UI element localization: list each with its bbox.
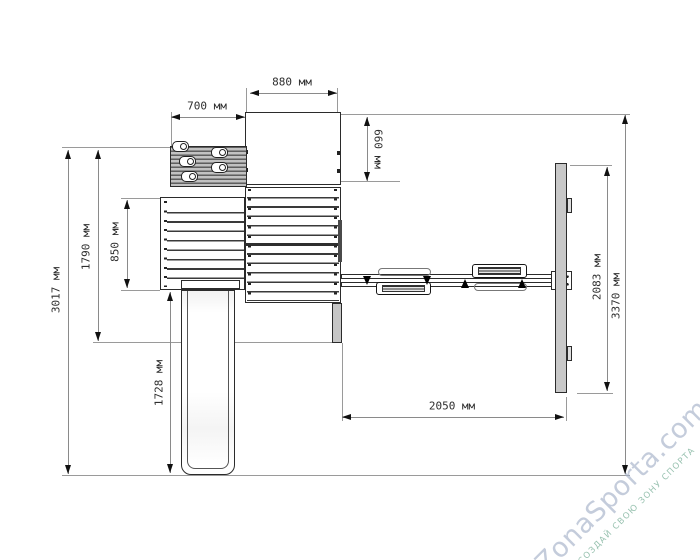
dim-label-aframe-base-length: 2083 мм	[591, 254, 604, 300]
swing-beam-rail	[341, 282, 565, 287]
dim-label-overall-depth: 3017 мм	[50, 267, 63, 313]
dim-label-tower-width: 880 мм	[272, 76, 312, 89]
slide-rails	[187, 291, 229, 469]
dimension-tower-depth	[367, 117, 368, 181]
extension-line	[342, 343, 343, 421]
deck-divider	[245, 243, 341, 246]
dimension-slide-length	[170, 292, 171, 473]
post-bracket	[567, 198, 572, 213]
deck-side-rail	[338, 220, 342, 262]
extension-line	[337, 88, 338, 112]
dimensional-drawing: 880 мм 700 мм 660 мм 3017 мм 1790 мм 850…	[0, 0, 700, 560]
dimension-overall-width	[625, 115, 626, 474]
climbing-hold	[181, 171, 198, 182]
climbing-hold	[179, 156, 196, 167]
post-bracket	[567, 346, 572, 361]
extension-line	[341, 181, 400, 182]
dimension-tower-width	[250, 93, 337, 94]
swing-seat-left-ghost	[378, 268, 431, 276]
dim-label-slide-length: 1728 мм	[153, 360, 166, 406]
dimension-deck-width	[127, 200, 128, 288]
dim-label-overall-width: 3370 мм	[610, 273, 623, 319]
chain-anchor-arrow	[518, 279, 526, 288]
a-frame-post	[555, 163, 567, 393]
extension-line	[341, 114, 630, 115]
dim-label-frame-depth: 1790 мм	[80, 224, 93, 270]
dimension-climb-wall-width	[171, 117, 245, 118]
slide-entry	[181, 280, 240, 289]
climbing-hold	[172, 141, 189, 152]
dimension-aframe-base-length	[607, 167, 608, 391]
dim-label-deck-width: 850 мм	[109, 222, 122, 262]
extension-line	[62, 147, 170, 148]
deck-fasteners	[248, 189, 251, 301]
dim-label-tower-depth: 660 мм	[372, 129, 385, 169]
extension-line	[566, 397, 567, 421]
dim-label-climb-wall-width: 700 мм	[187, 100, 227, 113]
extension-line	[121, 198, 160, 199]
extension-line	[62, 475, 630, 476]
extension-line	[577, 393, 613, 394]
roof-bracket	[337, 169, 340, 173]
extension-line	[121, 290, 160, 291]
left-deck-fasteners	[164, 201, 167, 287]
dim-label-swing-beam-span: 2050 мм	[429, 400, 475, 413]
tower-roof	[245, 112, 341, 185]
dimension-frame-depth	[98, 150, 99, 341]
swing-seat-surface	[382, 285, 425, 292]
chain-anchor-arrow	[461, 279, 469, 288]
deck-fasteners	[334, 189, 337, 301]
extension-line	[570, 165, 612, 166]
roof-bracket	[337, 151, 340, 155]
chain-anchor-arrow	[423, 276, 431, 285]
chain-anchor-arrow	[363, 276, 371, 285]
dimension-overall-depth	[68, 150, 69, 474]
deck-post	[332, 303, 342, 343]
extension-line	[246, 88, 247, 112]
climbing-hold	[211, 162, 228, 173]
swing-beam-rail	[341, 274, 565, 279]
climbing-hold	[211, 147, 228, 158]
swing-seat-right	[472, 264, 527, 278]
swing-seat-surface	[478, 267, 521, 275]
left-deck-boards	[167, 204, 244, 281]
dimension-swing-beam-span	[342, 417, 564, 418]
